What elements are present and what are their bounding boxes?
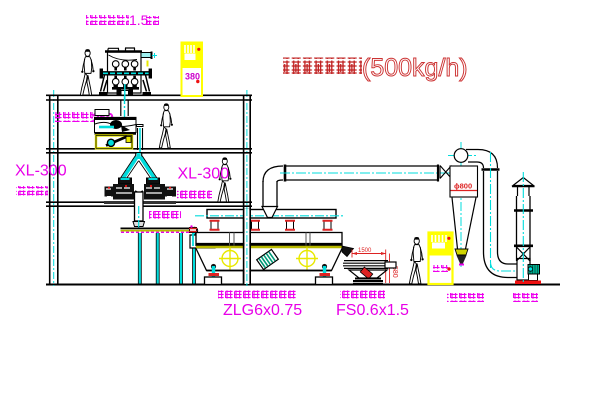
svg-text:FS0.6x1.5: FS0.6x1.5 — [336, 302, 409, 319]
svg-text:XL-300: XL-300 — [15, 163, 67, 180]
svg-text:ZLG6x0.75: ZLG6x0.75 — [223, 302, 302, 319]
svg-text:ɸ800: ɸ800 — [454, 182, 472, 191]
svg-text:(500kg/h): (500kg/h) — [362, 54, 468, 82]
svg-text:1.5: 1.5 — [129, 12, 149, 28]
svg-text:XL-300: XL-300 — [178, 166, 230, 183]
